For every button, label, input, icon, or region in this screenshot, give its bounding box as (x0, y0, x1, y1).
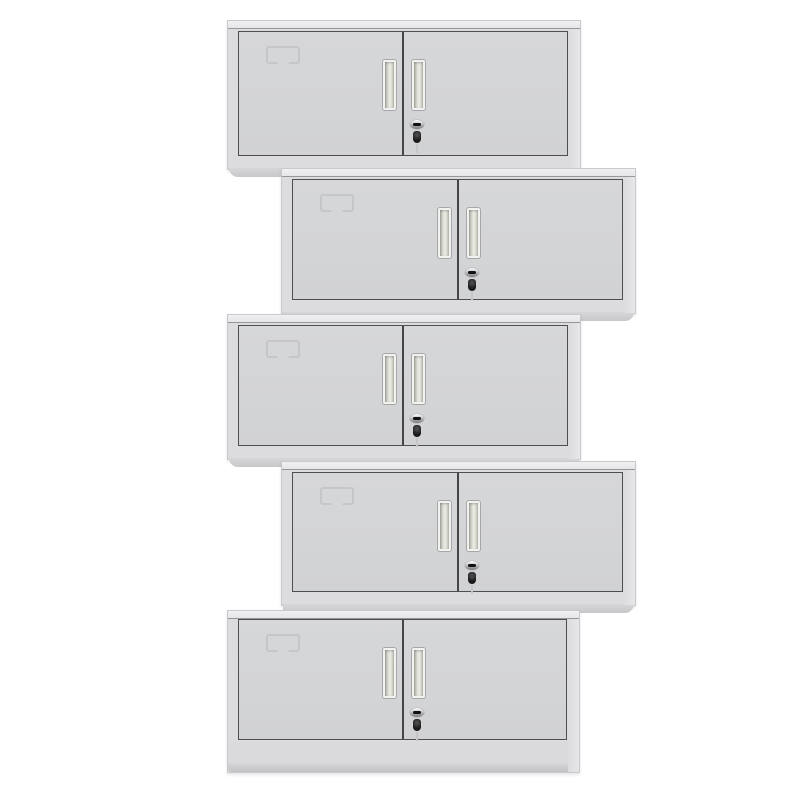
label-card-holder (266, 634, 300, 652)
right-door (403, 32, 567, 155)
lock-cylinder (410, 414, 424, 423)
cabinet-top-face (282, 169, 635, 177)
cabinet-side-highlight (624, 470, 635, 605)
left-door (239, 326, 403, 445)
door-panel-area (292, 179, 623, 300)
hanging-key-tail (416, 144, 418, 153)
left-door (293, 180, 458, 299)
door-panel-area (238, 31, 568, 156)
door-panel-area (292, 472, 623, 592)
key-slot (413, 417, 421, 420)
right-door-handle (412, 648, 425, 698)
door-divider (402, 32, 404, 155)
label-card-holder (266, 46, 300, 64)
left-door-handle (383, 648, 396, 698)
key-slot (413, 711, 421, 714)
cabinet-top-face (228, 21, 580, 29)
label-card-holder (266, 340, 300, 358)
lock-cylinder (465, 561, 479, 570)
cabinet-1 (227, 20, 581, 170)
hanging-key-head (468, 572, 476, 584)
left-door (293, 473, 458, 591)
hanging-key-head (468, 279, 476, 291)
door-divider (402, 620, 404, 739)
door-divider (457, 473, 459, 591)
right-door (458, 473, 623, 591)
left-door-handle (383, 354, 396, 404)
hanging-key-tail (416, 732, 418, 741)
cabinet-side-highlight (624, 177, 635, 313)
door-lock (465, 561, 479, 594)
right-door-handle (467, 501, 480, 551)
hanging-key-tail (471, 292, 473, 301)
cabinet-top-face (228, 611, 579, 619)
cabinet-5 (227, 610, 580, 773)
door-lock (410, 120, 424, 153)
cabinet-2 (281, 168, 636, 314)
right-door (403, 326, 567, 445)
left-door (239, 32, 403, 155)
cabinet-side-highlight (569, 323, 580, 459)
product-photo (0, 0, 800, 800)
hanging-key-head (413, 425, 421, 437)
lock-cylinder (410, 708, 424, 717)
hanging-key-head (413, 719, 421, 731)
left-door (239, 620, 403, 739)
left-door-handle (383, 60, 396, 110)
left-door-handle (438, 501, 451, 551)
key-slot (413, 123, 421, 126)
cabinet-4 (281, 461, 636, 606)
lock-cylinder (410, 120, 424, 129)
door-panel-area (238, 325, 568, 446)
door-lock (410, 708, 424, 741)
label-card-holder (320, 487, 354, 505)
hanging-key-head (413, 131, 421, 143)
cabinet-top-face (282, 462, 635, 470)
key-slot (468, 564, 476, 567)
cabinet-side-highlight (568, 619, 579, 772)
right-door-handle (467, 208, 480, 258)
hanging-key-tail (416, 438, 418, 447)
right-door-handle (412, 60, 425, 110)
label-card-holder (320, 194, 354, 212)
left-door-handle (438, 208, 451, 258)
door-divider (402, 326, 404, 445)
lock-cylinder (465, 268, 479, 277)
right-door (458, 180, 623, 299)
cabinet-top-face (228, 315, 580, 323)
cabinet-side-highlight (569, 29, 580, 169)
door-lock (410, 414, 424, 447)
hanging-key-tail (471, 585, 473, 594)
door-lock (465, 268, 479, 301)
cabinet-3 (227, 314, 581, 460)
key-slot (468, 271, 476, 274)
right-door-handle (412, 354, 425, 404)
door-panel-area (238, 619, 567, 740)
cabinet-base-plinth (228, 742, 579, 772)
door-divider (457, 180, 459, 299)
right-door (403, 620, 567, 739)
